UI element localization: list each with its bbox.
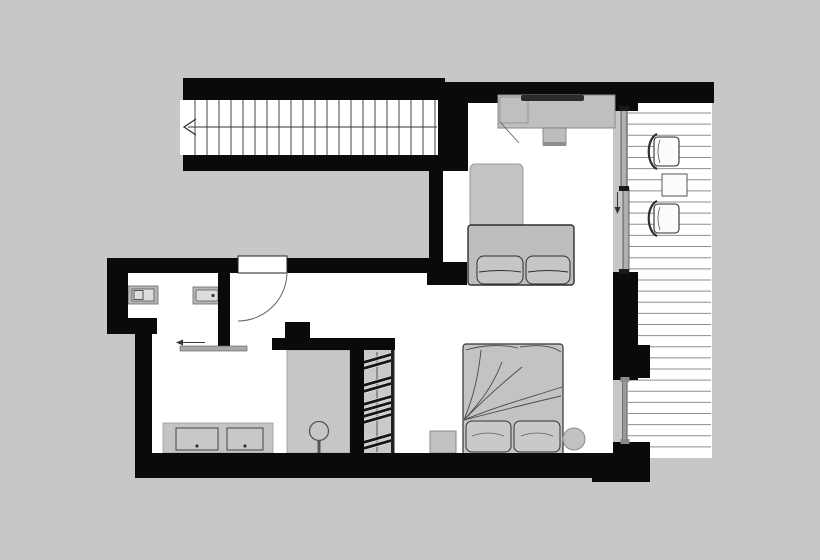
bed (463, 344, 563, 455)
wall-wardrobe-right (391, 350, 395, 453)
wall-shower-top (272, 338, 395, 350)
wall-hall-step (427, 262, 467, 285)
wall-stair-bottom (183, 155, 468, 171)
stool (563, 428, 585, 450)
wall-stair-top (183, 78, 445, 100)
wall-stair-end (438, 98, 468, 156)
bidet (193, 287, 221, 304)
chaise (470, 164, 523, 227)
wall-living-left (429, 168, 443, 262)
floor-plan (0, 0, 820, 560)
wall-left-jog (107, 318, 157, 334)
balcony-table (662, 174, 687, 196)
wall-bottom (135, 453, 650, 478)
pillow-left (466, 421, 511, 452)
wall-wc-stub (218, 273, 230, 346)
wall-shower-partition (350, 350, 364, 453)
wall-right-jog (636, 345, 650, 378)
pillow-right (514, 421, 560, 452)
wall-right-mid (613, 272, 638, 380)
laptop (521, 95, 584, 101)
balcony-sliding-glass-door (615, 106, 630, 274)
toilet (128, 286, 158, 304)
vanity (163, 423, 273, 453)
wall-hall-top-right (287, 258, 443, 273)
wall-left-upper (107, 258, 128, 322)
sofa (468, 225, 574, 285)
nightstand (430, 431, 456, 453)
wall-t-stub (285, 322, 310, 339)
glass-door-arrow (615, 192, 621, 214)
wall-right-bottom (613, 442, 650, 460)
desk-chair (543, 128, 566, 146)
wall-left-lower (135, 332, 152, 458)
